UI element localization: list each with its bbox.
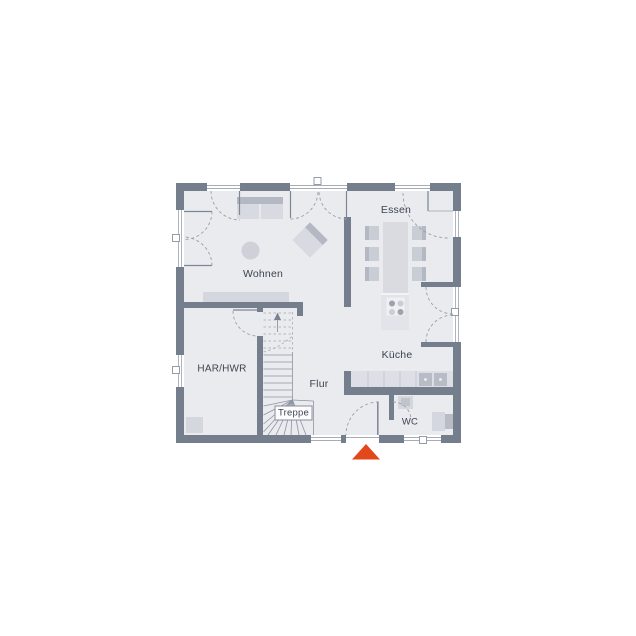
- kitchen-counter: [351, 371, 453, 387]
- round-side-table: [242, 242, 260, 260]
- window-east-1: [453, 211, 461, 237]
- wall-stair-left: [257, 336, 263, 436]
- room-label-essen: Essen: [381, 204, 411, 216]
- room-label-har-hwr: HAR/HWR: [197, 364, 246, 375]
- cooktop: [387, 298, 405, 316]
- room-label-flur: Flur: [310, 378, 329, 390]
- door-north-essen: [395, 183, 430, 191]
- wall-counter-end-stub: [344, 371, 351, 387]
- wall-kueche-flur: [344, 387, 453, 395]
- wall-wohnen-har: [184, 302, 303, 308]
- sofa: [237, 197, 283, 219]
- har-appliance: [186, 417, 203, 433]
- window-south-1: [311, 435, 341, 443]
- dining-table: [383, 222, 408, 294]
- room-label-kueche: Küche: [382, 349, 413, 361]
- wall-kueche-door-top-stub: [421, 282, 453, 287]
- wall-wc-left-stub: [389, 395, 394, 420]
- wall-stub-passage: [297, 308, 303, 316]
- floorplan-canvas: Wohnen Essen Küche Flur HAR/HWR Treppe W…: [0, 0, 636, 636]
- entrance-arrow-icon: [352, 444, 380, 460]
- room-label-wc: WC: [402, 417, 418, 428]
- window-north-1: [207, 183, 240, 191]
- room-label-wohnen: Wohnen: [243, 268, 283, 280]
- wc-toilet: [432, 412, 453, 431]
- wall-wohnen-essen-stub: [344, 217, 351, 307]
- entrance-opening: [346, 435, 379, 443]
- room-label-treppe: Treppe: [274, 405, 313, 420]
- floorplan-drawing: [0, 0, 636, 636]
- sideboard: [203, 292, 289, 302]
- wall-kueche-door-bottom-stub: [421, 342, 453, 347]
